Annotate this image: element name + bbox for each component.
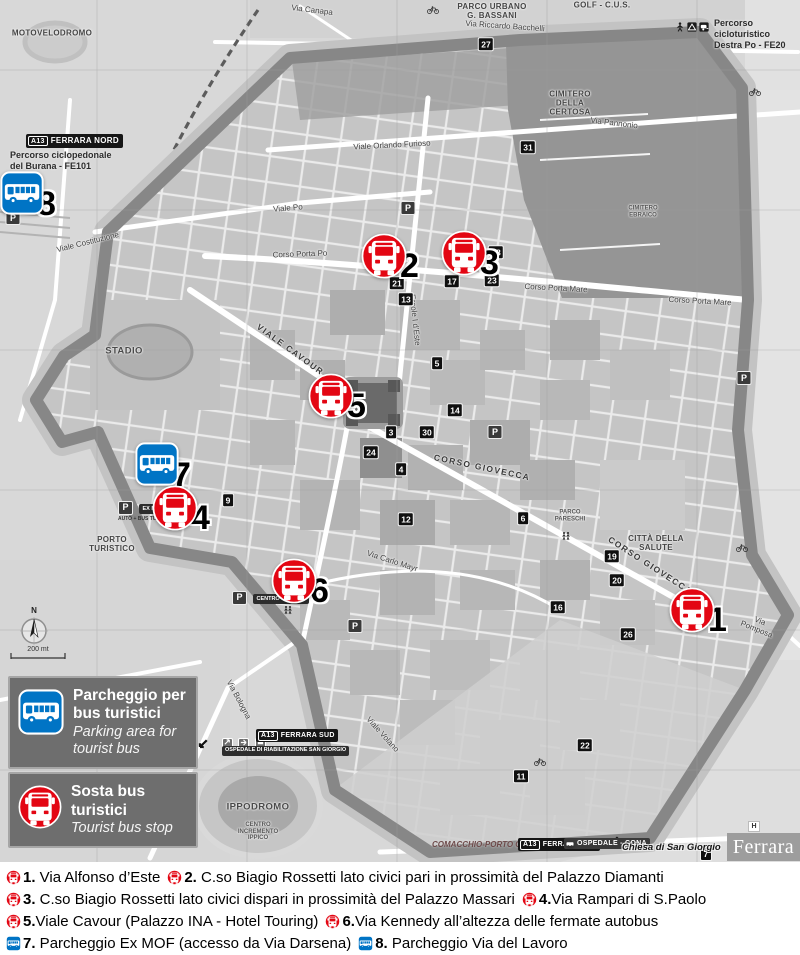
- caption-number: 7.: [23, 935, 36, 952]
- parking-p-badge: P: [736, 371, 751, 385]
- bus-icon: [566, 840, 574, 848]
- scale-label: 200 mt: [8, 646, 68, 653]
- bus-stop-icon: [167, 870, 182, 885]
- caption-item: 8. Parcheggio Via del Lavoro: [358, 935, 567, 952]
- hospital-badge: H: [748, 821, 760, 832]
- bus-stop-icon: [271, 558, 317, 604]
- bus-stop-icon: [361, 233, 407, 279]
- caravan-icon: [699, 22, 709, 32]
- bus-stop-icon: [308, 373, 354, 419]
- legend-parking-title-it: Parcheggio per bus turistici: [73, 687, 186, 724]
- bus-stop-icon: [18, 785, 62, 829]
- scale-line: [10, 653, 66, 660]
- caption-line: 7. Parcheggio Ex MOF (accesso da Via Dar…: [6, 932, 800, 954]
- ferrara-sud-label: FERRARA SUD: [281, 732, 335, 739]
- parking-marker-8[interactable]: 8: [0, 171, 56, 221]
- legend-parking-title-en: Parking area for tourist bus: [73, 724, 186, 759]
- bus-stop-marker-4[interactable]: 4: [152, 485, 210, 535]
- bus-stop-icon: [325, 914, 340, 929]
- chiesa-san-giorgio-label: Chiesa di San Giorgio: [622, 843, 721, 853]
- map-canvas: MOTOVELODROMOVia CanapaPARCO URBANO G. B…: [0, 0, 800, 862]
- poi-number-badge: 31: [520, 140, 536, 154]
- poi-number-badge: 11: [513, 769, 529, 783]
- bus-stop-marker-5[interactable]: 5: [308, 373, 366, 423]
- parking-icon: [18, 689, 64, 735]
- caption-item: 7. Parcheggio Ex MOF (accesso da Via Dar…: [6, 935, 351, 952]
- poi-number-badge: 9: [222, 493, 234, 507]
- caption-number: 8.: [375, 935, 388, 952]
- cyclist-icon: [749, 88, 761, 96]
- sign-a13-ferrara-sud-inner: A13 FERRARA SUD: [256, 729, 338, 742]
- caption-item: 2. C.so Biagio Rossetti lato civici pari…: [167, 869, 663, 886]
- map-legend: Parcheggio per bus turistici Parking are…: [8, 676, 198, 851]
- parking-p-badge: P: [118, 501, 133, 515]
- bus-stop-icon: [522, 892, 537, 907]
- poi-number-badge: 19: [604, 549, 620, 563]
- legend-stop-title-en: Tourist bus stop: [71, 820, 173, 837]
- tent-icon: [687, 22, 697, 32]
- parking-icon: [135, 442, 179, 486]
- poi-number-badge: 6: [517, 511, 529, 525]
- poi-number-badge: 12: [398, 512, 414, 526]
- caption-text: C.so Biagio Rossetti lato civici pari in…: [197, 869, 664, 886]
- parking-icon: [358, 936, 373, 951]
- poi-number-badge: 20: [609, 573, 625, 587]
- caption-text: Via Alfonso d’Este: [36, 869, 161, 886]
- poi-number-badge: 3: [385, 425, 397, 439]
- a13-road-chip: A13: [28, 136, 48, 146]
- caption-line: 3. C.so Biagio Rossetti lato civici disp…: [6, 888, 800, 910]
- pedestrians-icon: [562, 532, 571, 541]
- scale-bar: 200 mt: [8, 646, 68, 662]
- parking-icon: [0, 171, 44, 215]
- destra-po-route-label: Percorso cicloturistico Destra Po - FE20: [714, 18, 800, 50]
- caption-item: 4.Via Rampari di S.Paolo: [522, 891, 706, 908]
- caption-item: 5.Viale Cavour (Palazzo INA - Hotel Tour…: [6, 913, 318, 930]
- a13-road-chip: A13: [258, 731, 278, 741]
- parking-p-badge: P: [400, 201, 415, 215]
- caption-number: 5.: [23, 913, 36, 930]
- cyclist-icon: [736, 544, 748, 552]
- caption-line: 1. Via Alfonso d’Este2. C.so Biagio Ross…: [6, 866, 800, 888]
- bus-stop-marker-6[interactable]: 6: [271, 558, 329, 608]
- bus-stop-icon: [6, 914, 21, 929]
- ferrara-nord-label: FERRARA NORD: [51, 137, 119, 145]
- ferrara-tourist-bus-map-page: MOTOVELODROMOVia CanapaPARCO URBANO G. B…: [0, 0, 800, 955]
- bus-stop-icon: [6, 892, 21, 907]
- sign-a13-ferrara-nord: A13 FERRARA NORD: [26, 134, 123, 148]
- legend-stop-box: Sosta bus turistici Tourist bus stop: [8, 772, 198, 848]
- bus-stop-icon: [152, 485, 198, 531]
- bus-stop-icon: [669, 587, 715, 633]
- poi-number-badge: 22: [577, 738, 593, 752]
- ferrara-logo-text: Ferrara: [733, 836, 794, 859]
- caption-item: 1. Via Alfonso d’Este: [6, 869, 160, 886]
- legend-stop-title-it: Sosta bus turistici: [71, 783, 173, 820]
- caption-number: 1.: [23, 869, 36, 886]
- bus-stop-marker-3[interactable]: 3: [441, 230, 499, 280]
- hiker-icon: [676, 22, 684, 32]
- caption-text: C.so Biagio Rossetti lato civici dispari…: [36, 891, 515, 908]
- caption-list: 1. Via Alfonso d’Este2. C.so Biagio Ross…: [0, 862, 800, 955]
- caption-text: Parcheggio Ex MOF (accesso da Via Darsen…: [36, 935, 352, 952]
- poi-number-badge: 16: [550, 600, 566, 614]
- a13-road-chip: A13: [520, 840, 540, 850]
- caption-number: 6.: [342, 913, 355, 930]
- caption-text: Viale Cavour (Palazzo INA - Hotel Tourin…: [36, 913, 319, 930]
- cyclist-icon: [427, 6, 439, 14]
- parking-p-badge: P: [232, 591, 247, 605]
- caption-item: 3. C.so Biagio Rossetti lato civici disp…: [6, 891, 515, 908]
- caption-number: 4.: [539, 891, 552, 908]
- poi-number-badge: 5: [431, 356, 443, 370]
- caption-text: Via Rampari di S.Paolo: [551, 891, 706, 908]
- poi-number-badge: 24: [363, 445, 379, 459]
- caption-number: 3.: [23, 891, 36, 908]
- compass-north-label: N: [15, 606, 53, 615]
- legend-parking-box: Parcheggio per bus turistici Parking are…: [8, 676, 198, 769]
- caption-text: Parcheggio Via del Lavoro: [388, 935, 568, 952]
- poi-number-badge: 30: [419, 425, 435, 439]
- caption-line: 5.Viale Cavour (Palazzo INA - Hotel Tour…: [6, 910, 800, 932]
- poi-number-badge: 26: [620, 627, 636, 641]
- cyclist-icon: [534, 758, 546, 766]
- compass-icon: [16, 615, 52, 647]
- ferrara-logo: Ferrara: [727, 833, 800, 861]
- parking-icon: [6, 936, 21, 951]
- bus-stop-marker-2[interactable]: 2: [361, 233, 419, 283]
- bus-stop-icon: [6, 870, 21, 885]
- arrow-sw-icon: [197, 738, 209, 750]
- bus-stop-marker-1[interactable]: 1: [669, 587, 727, 637]
- parking-p-badge: P: [487, 425, 502, 439]
- poi-number-badge: 4: [395, 462, 407, 476]
- caption-item: 6.Via Kennedy all’altezza delle fermate …: [325, 913, 658, 930]
- caption-number: 2.: [184, 869, 197, 886]
- caption-text: Via Kennedy all’altezza delle fermate au…: [355, 913, 658, 930]
- parking-p-badge: P: [347, 619, 362, 633]
- poi-number-badge: 13: [398, 292, 414, 306]
- burana-route-label: Percorso ciclopedonale del Burana - FE10…: [10, 150, 112, 172]
- poi-number-badge: 14: [447, 403, 463, 417]
- sign-ospedale-riabilitazione: OSPEDALE DI RIABILITAZIONE SAN GIORGIO: [222, 746, 349, 756]
- poi-number-badge: 27: [478, 37, 494, 51]
- bus-stop-icon: [441, 230, 487, 276]
